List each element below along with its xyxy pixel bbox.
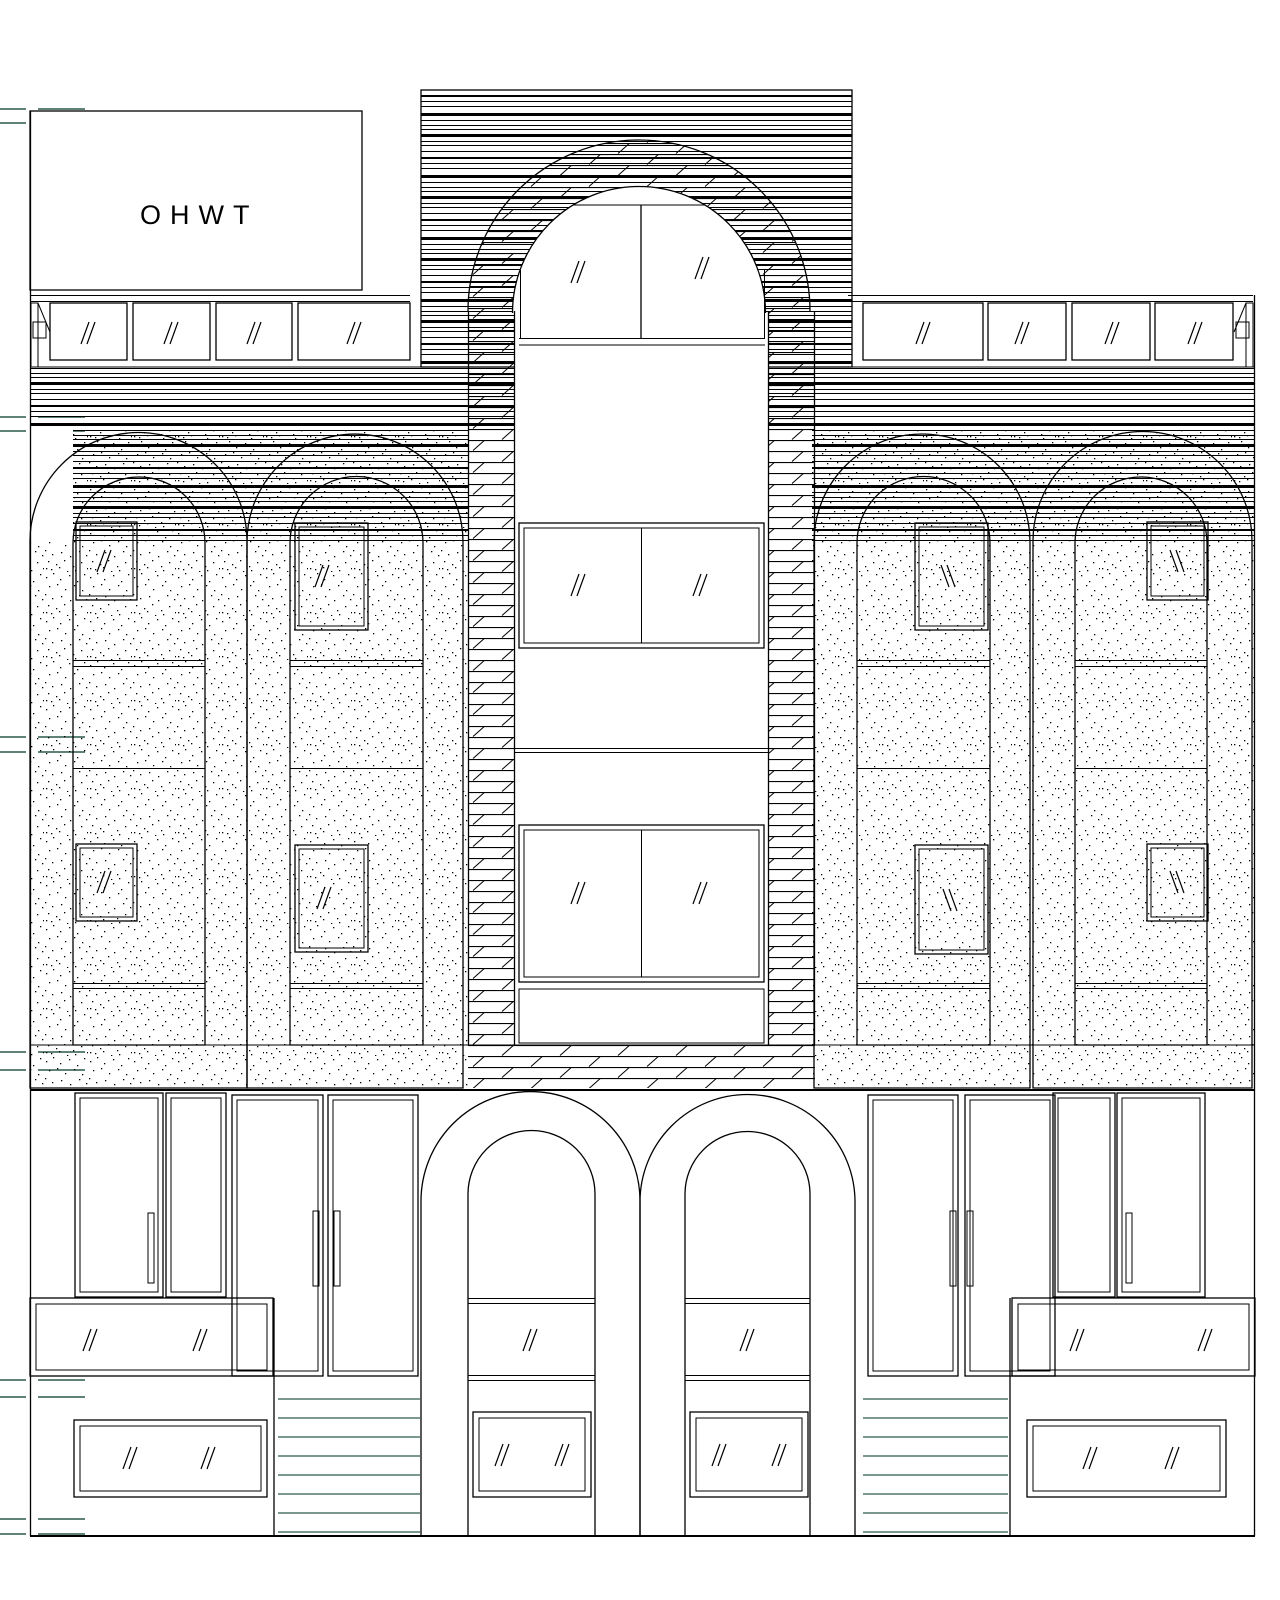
- elevation-drawing-sheet: OHWT: [0, 0, 1280, 1600]
- arch-pier-left: [468, 311, 515, 1045]
- door-leaf: [232, 1095, 323, 1376]
- glass-symbol-icon: [1188, 322, 1202, 344]
- glass-symbol-icon: [193, 1329, 207, 1351]
- glass-symbol-icon: [247, 322, 261, 344]
- clerestory-window: [133, 303, 210, 360]
- clerestory-row-left: [30, 296, 410, 368]
- entrance-opening-left: [468, 1131, 595, 1537]
- stairs-left: [278, 1399, 420, 1532]
- glass-symbol-icon: [164, 322, 178, 344]
- glass-symbol-icon: [523, 1329, 537, 1351]
- ground-floor-right: [863, 1093, 1255, 1536]
- basement-window: [1027, 1420, 1226, 1497]
- stairs-right: [863, 1399, 1008, 1532]
- entrance-right-contents: [685, 1299, 810, 1498]
- glass-symbol-icon: [1198, 1329, 1212, 1351]
- glass-symbol-icon: [1070, 1329, 1084, 1351]
- door-leaf: [868, 1095, 958, 1376]
- door-handle: [148, 1213, 154, 1283]
- clerestory-window: [1155, 303, 1233, 360]
- glass-symbol-icon: [83, 1329, 97, 1351]
- ohwt-signage-box: OHWT: [30, 111, 362, 290]
- arch-pier-right: [768, 311, 815, 1045]
- glass-symbol-icon: [772, 1444, 786, 1466]
- door-panel: [1053, 1093, 1115, 1297]
- clerestory-row-right: [848, 296, 1253, 368]
- ohwt-label: OHWT: [140, 200, 258, 230]
- ground-floor-left: [30, 1093, 420, 1536]
- glass-symbol-icon: [201, 1447, 215, 1469]
- door-handle: [334, 1211, 340, 1286]
- entrance-window: [473, 1412, 591, 1497]
- glass-symbol-icon: [916, 322, 930, 344]
- door-leaf: [328, 1095, 418, 1376]
- door-handle: [1126, 1213, 1132, 1283]
- clerestory-window: [50, 303, 127, 360]
- clerestory-window: [1072, 303, 1150, 360]
- end-bracket: [33, 322, 46, 338]
- glass-symbol-icon: [495, 1444, 509, 1466]
- glass-symbol-icon: [740, 1329, 754, 1351]
- glass-symbol-icon: [347, 322, 361, 344]
- door-leaf: [75, 1093, 163, 1297]
- basement-window: [74, 1420, 267, 1497]
- entrance-arches: [421, 1092, 855, 1536]
- glass-symbol-icon: [123, 1447, 137, 1469]
- clerestory-window: [988, 303, 1066, 360]
- clerestory-window: [863, 303, 983, 360]
- entrance-arch-surround-right: [640, 1095, 855, 1537]
- entrance-arch-surround-left: [421, 1092, 640, 1536]
- tower-base-band: [468, 1045, 815, 1088]
- glass-symbol-icon: [1015, 322, 1029, 344]
- glass-symbol-icon: [1165, 1447, 1179, 1469]
- glass-symbol-icon: [1083, 1447, 1097, 1469]
- central-tower: [468, 140, 815, 1088]
- entrance-left-contents: [468, 1299, 595, 1498]
- glass-symbol-icon: [555, 1444, 569, 1466]
- entrance-opening-right: [685, 1132, 810, 1537]
- door-panel: [166, 1093, 226, 1297]
- glass-symbol-icon: [712, 1444, 726, 1466]
- clerestory-window: [216, 303, 292, 360]
- door-leaf: [1117, 1093, 1205, 1297]
- end-bracket: [1236, 322, 1249, 338]
- left-spandrel-hatch: [73, 430, 468, 542]
- left-corner-wall: [30, 430, 73, 542]
- glass-symbol-icon: [1105, 322, 1119, 344]
- shopfront-window-band: [1012, 1298, 1255, 1376]
- entrance-window: [690, 1412, 808, 1497]
- glass-symbol-icon: [81, 322, 95, 344]
- clerestory-window: [298, 303, 410, 360]
